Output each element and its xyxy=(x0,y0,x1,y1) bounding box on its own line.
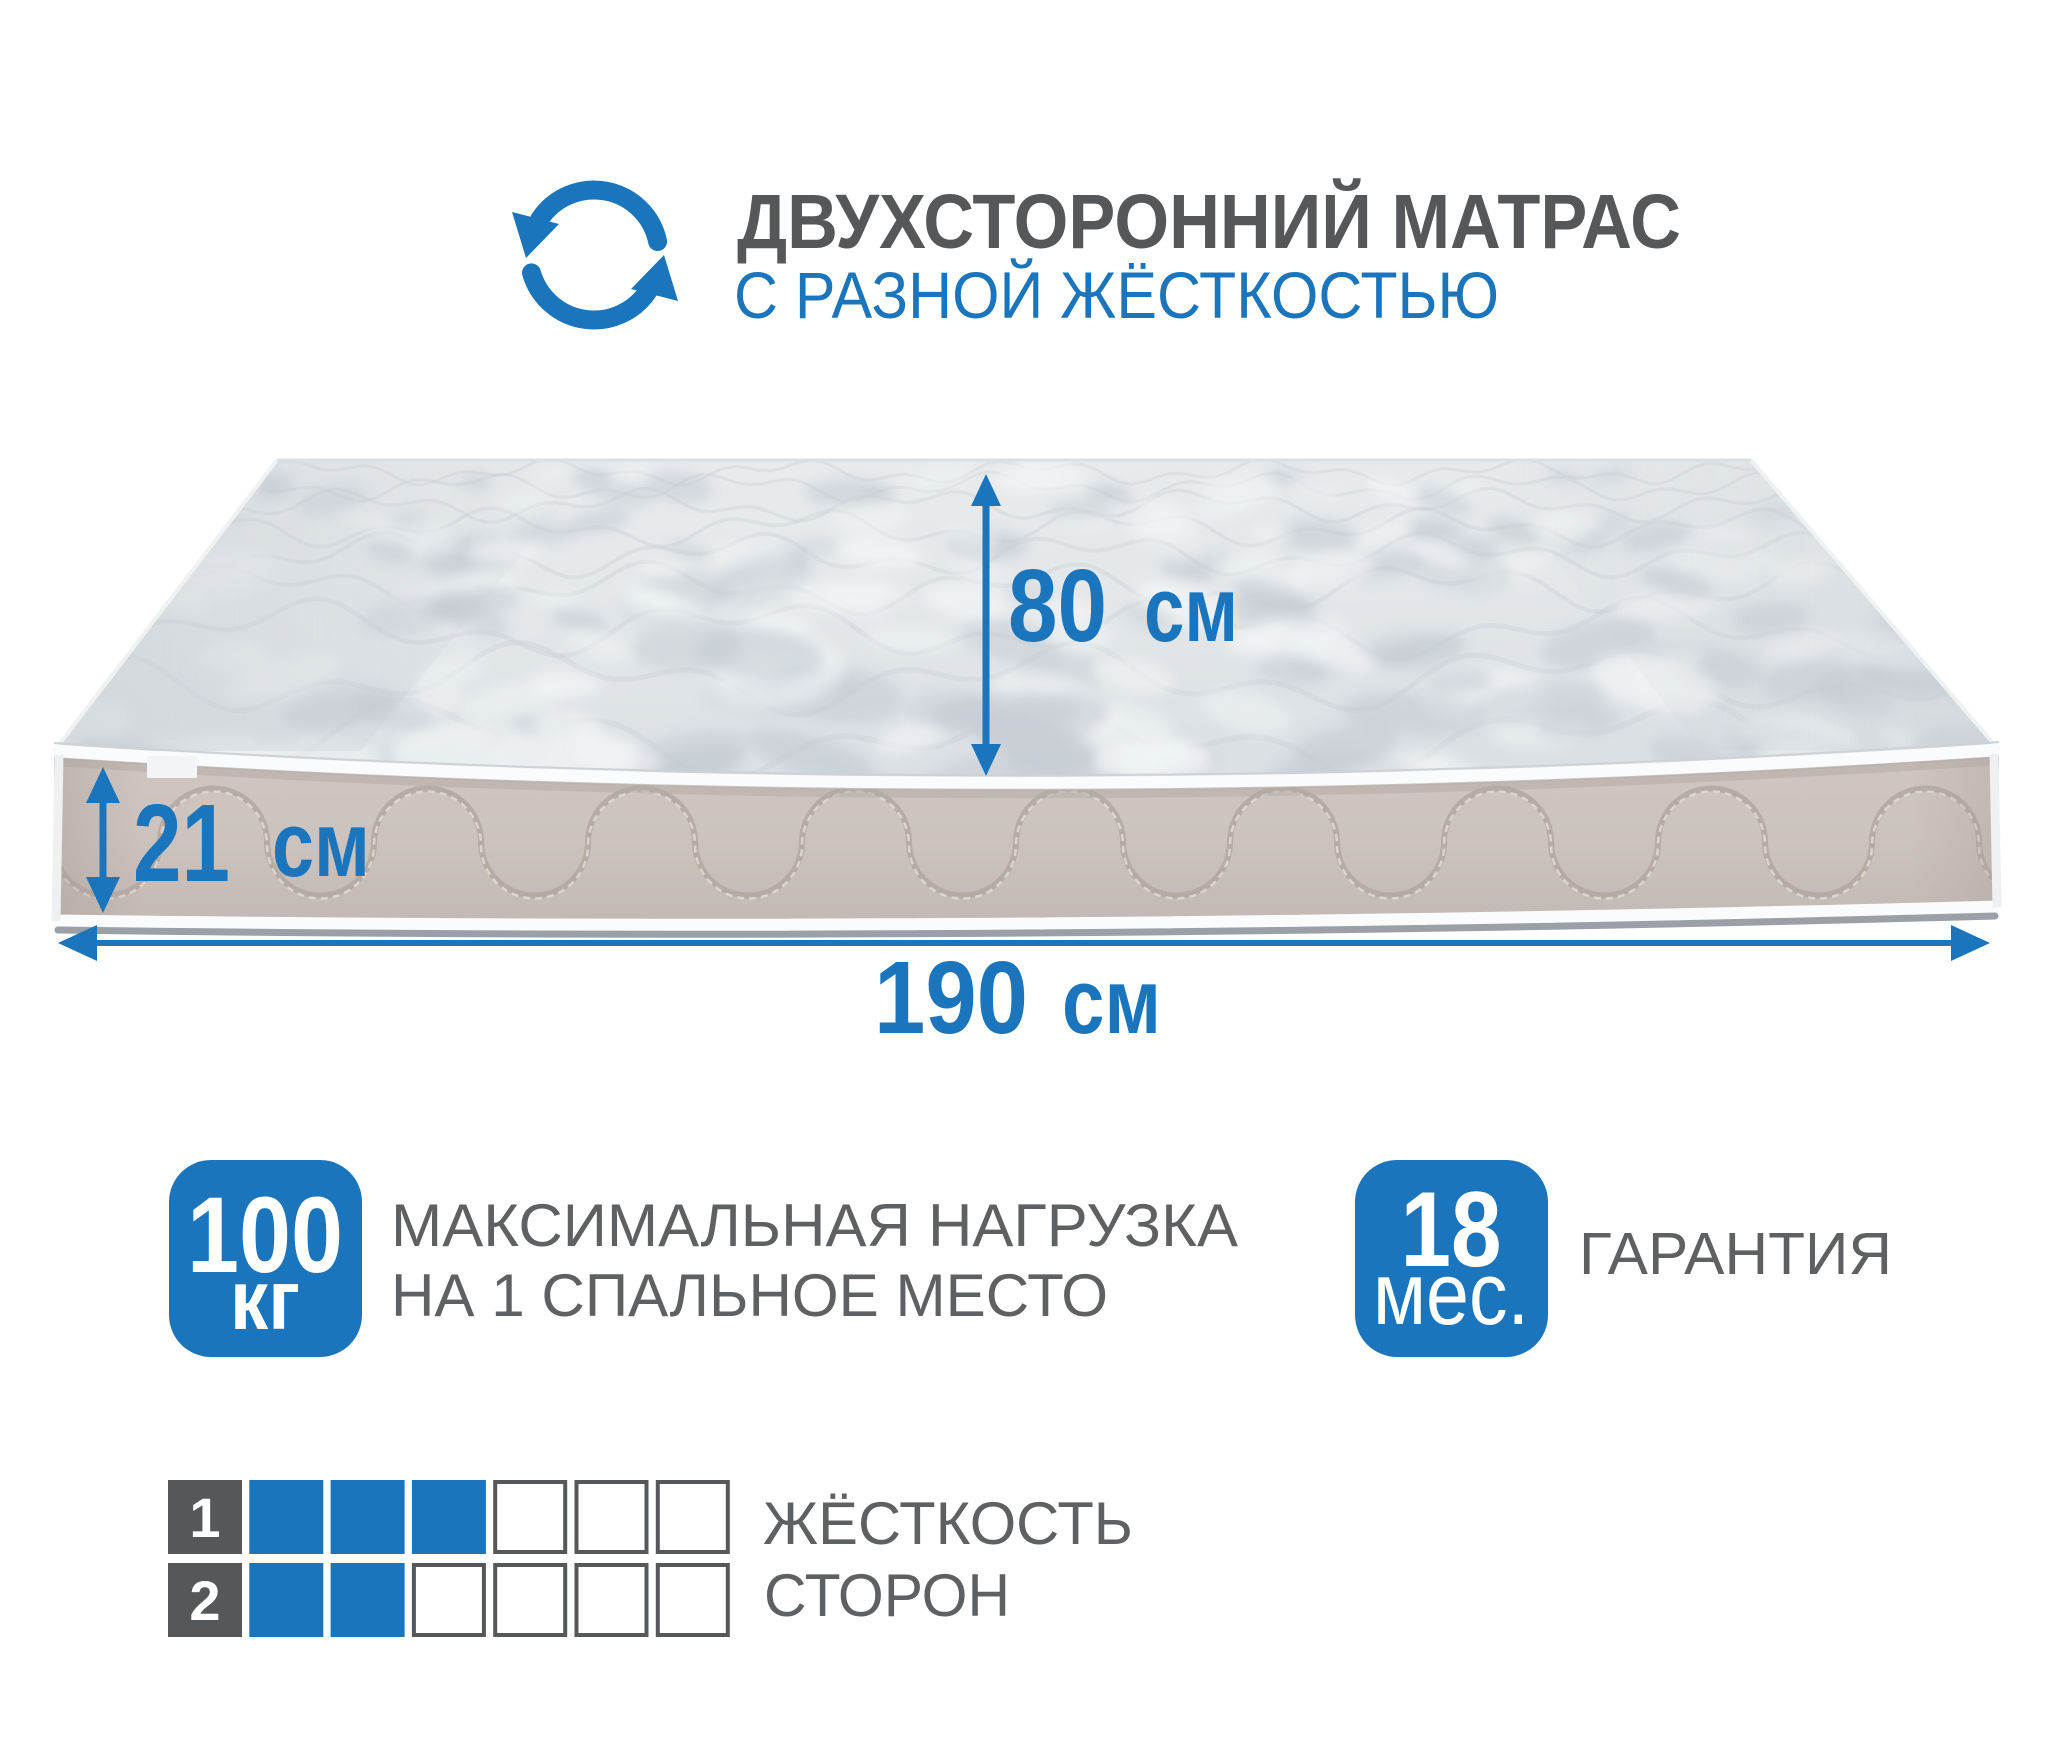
svg-text:мес.: мес. xyxy=(1373,1244,1529,1343)
svg-text:ГАРАНТИЯ: ГАРАНТИЯ xyxy=(1579,1221,1892,1287)
svg-text:НА 1 СПАЛЬНОЕ МЕСТО: НА 1 СПАЛЬНОЕ МЕСТО xyxy=(391,1262,1108,1329)
svg-text:190: 190 xyxy=(874,940,1028,1055)
svg-text:ЖЁСТКОСТЬ: ЖЁСТКОСТЬ xyxy=(763,1490,1133,1557)
svg-text:1: 1 xyxy=(189,1486,220,1549)
svg-text:см: см xyxy=(272,794,370,896)
svg-text:см: см xyxy=(1144,559,1238,661)
svg-text:ДВУХСТОРОННИЙ МАТРАС: ДВУХСТОРОННИЙ МАТРАС xyxy=(737,177,1681,265)
svg-text:см: см xyxy=(1062,951,1161,1053)
svg-text:80: 80 xyxy=(1008,548,1107,663)
svg-text:С РАЗНОЙ ЖЁСТКОСТЬЮ: С РАЗНОЙ ЖЁСТКОСТЬЮ xyxy=(734,257,1499,332)
svg-text:кг: кг xyxy=(230,1253,300,1347)
svg-text:СТОРОН: СТОРОН xyxy=(764,1562,1010,1629)
svg-text:МАКСИМАЛЬНАЯ НАГРУЗКА: МАКСИМАЛЬНАЯ НАГРУЗКА xyxy=(391,1192,1238,1259)
svg-text:21: 21 xyxy=(133,782,230,905)
svg-text:2: 2 xyxy=(189,1569,220,1632)
